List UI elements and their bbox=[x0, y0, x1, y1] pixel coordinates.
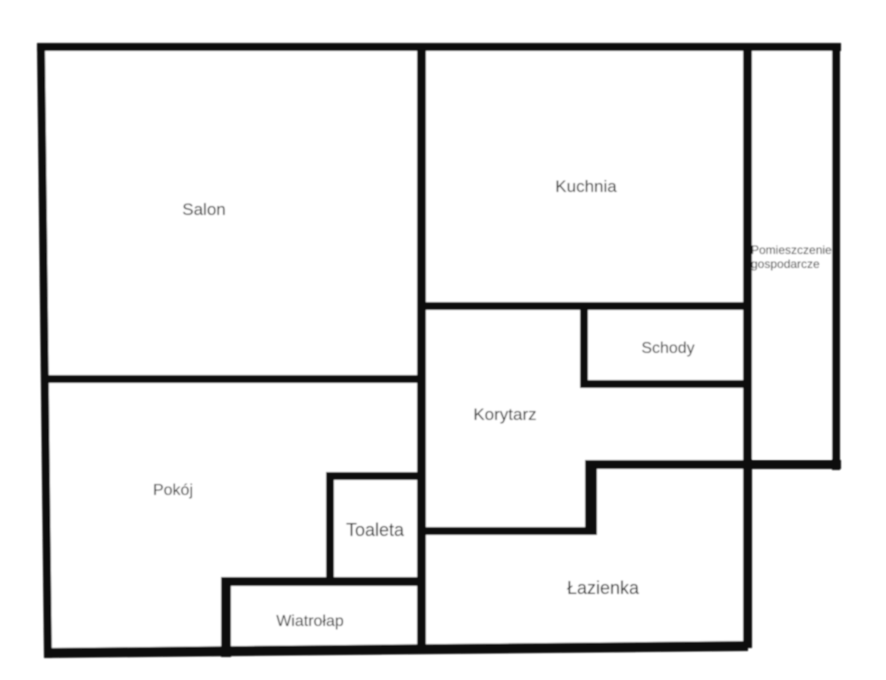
svg-text:Kuchnia: Kuchnia bbox=[555, 177, 617, 196]
svg-text:Pokój: Pokój bbox=[153, 482, 193, 499]
svg-text:gospodarcze: gospodarcze bbox=[751, 257, 820, 271]
svg-text:Pomieszczenie: Pomieszczenie bbox=[751, 243, 832, 257]
svg-text:Łazienka: Łazienka bbox=[567, 578, 640, 598]
svg-text:Wiatrołap: Wiatrołap bbox=[276, 613, 344, 630]
svg-text:Korytarz: Korytarz bbox=[473, 405, 536, 424]
svg-text:Toaleta: Toaleta bbox=[346, 520, 405, 540]
svg-text:Schody: Schody bbox=[641, 340, 694, 357]
svg-text:Salon: Salon bbox=[182, 200, 225, 219]
